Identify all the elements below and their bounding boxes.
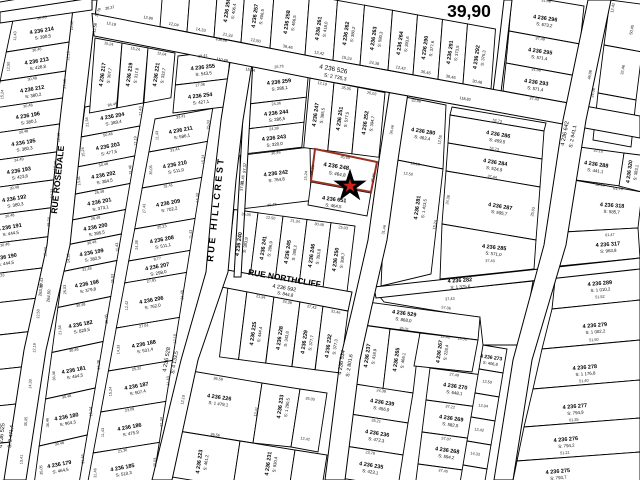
svg-text:12,50: 12,50: [36, 309, 40, 319]
svg-text:61,35: 61,35: [569, 418, 579, 423]
svg-text:15,24: 15,24: [109, 387, 113, 397]
svg-text:12,19: 12,19: [66, 51, 70, 61]
svg-text:21,34: 21,34: [58, 325, 63, 335]
svg-text:25,03: 25,03: [63, 285, 68, 295]
svg-text:31,46: 31,46: [128, 165, 133, 175]
svg-text:15,24: 15,24: [89, 407, 94, 417]
svg-text:61,47: 61,47: [605, 233, 615, 238]
svg-text:35,05: 35,05: [24, 417, 28, 427]
svg-text:39,90: 39,90: [447, 1, 491, 21]
svg-text:12,42: 12,42: [125, 301, 129, 311]
svg-text:31,46: 31,46: [81, 454, 86, 464]
svg-text:27,43: 27,43: [63, 79, 67, 89]
svg-text:51,50: 51,50: [589, 338, 599, 343]
svg-text:21,34: 21,34: [160, 417, 164, 427]
svg-text:51,40: 51,40: [579, 379, 589, 384]
svg-text:12,19: 12,19: [173, 334, 177, 344]
svg-text:15,24: 15,24: [201, 155, 205, 165]
svg-text:35,05: 35,05: [149, 165, 153, 175]
svg-text:51,52: 51,52: [595, 295, 605, 300]
svg-text:11,43: 11,43: [115, 243, 119, 252]
svg-text:12,19: 12,19: [133, 136, 138, 146]
svg-text:37,43: 37,43: [445, 297, 455, 302]
svg-text:13,41: 13,41: [77, 176, 82, 186]
svg-text:25,03: 25,03: [153, 458, 157, 468]
svg-text:15,24: 15,24: [43, 247, 47, 257]
svg-text:11,43: 11,43: [13, 31, 17, 40]
svg-text:14,33: 14,33: [66, 253, 71, 263]
svg-text:11,43: 11,43: [101, 428, 105, 437]
svg-text:35,05: 35,05: [39, 465, 44, 475]
svg-text:21,34: 21,34: [85, 117, 90, 127]
svg-text:36,46: 36,46: [52, 371, 57, 381]
svg-text:24,38: 24,38: [97, 360, 102, 370]
svg-text:24,38: 24,38: [135, 240, 139, 250]
svg-text:31,46: 31,46: [180, 290, 184, 300]
svg-text:27,43: 27,43: [138, 106, 143, 116]
svg-text:12,19: 12,19: [57, 133, 61, 143]
svg-text:27,43: 27,43: [142, 204, 146, 214]
svg-text:37,43: 37,43: [485, 259, 495, 263]
svg-text:11,43: 11,43: [166, 376, 170, 385]
svg-text:15,24: 15,24: [47, 217, 51, 227]
svg-text:15,24: 15,24: [0, 90, 4, 100]
svg-text:15,24: 15,24: [81, 147, 86, 157]
svg-text:S: 793,7: S: 793,7: [550, 475, 567, 480]
svg-text:61,76: 61,76: [613, 187, 623, 192]
svg-text:25,03: 25,03: [206, 120, 210, 130]
svg-text:51,21: 51,21: [560, 451, 570, 456]
svg-text:36,46: 36,46: [46, 418, 51, 428]
svg-text:35,05: 35,05: [104, 314, 109, 324]
svg-text:12,19: 12,19: [32, 343, 36, 353]
svg-text:11,43: 11,43: [189, 230, 193, 239]
svg-text:31,46: 31,46: [93, 468, 97, 478]
svg-text:11,43: 11,43: [155, 131, 159, 140]
svg-text:14,33: 14,33: [28, 379, 32, 389]
svg-text:12,42: 12,42: [70, 21, 74, 31]
svg-text:25,03: 25,03: [110, 274, 115, 284]
svg-text:14,33: 14,33: [195, 193, 199, 203]
svg-text:13,41: 13,41: [19, 455, 23, 465]
svg-text:12,50: 12,50: [6, 62, 10, 72]
svg-text:14,33: 14,33: [116, 345, 120, 355]
